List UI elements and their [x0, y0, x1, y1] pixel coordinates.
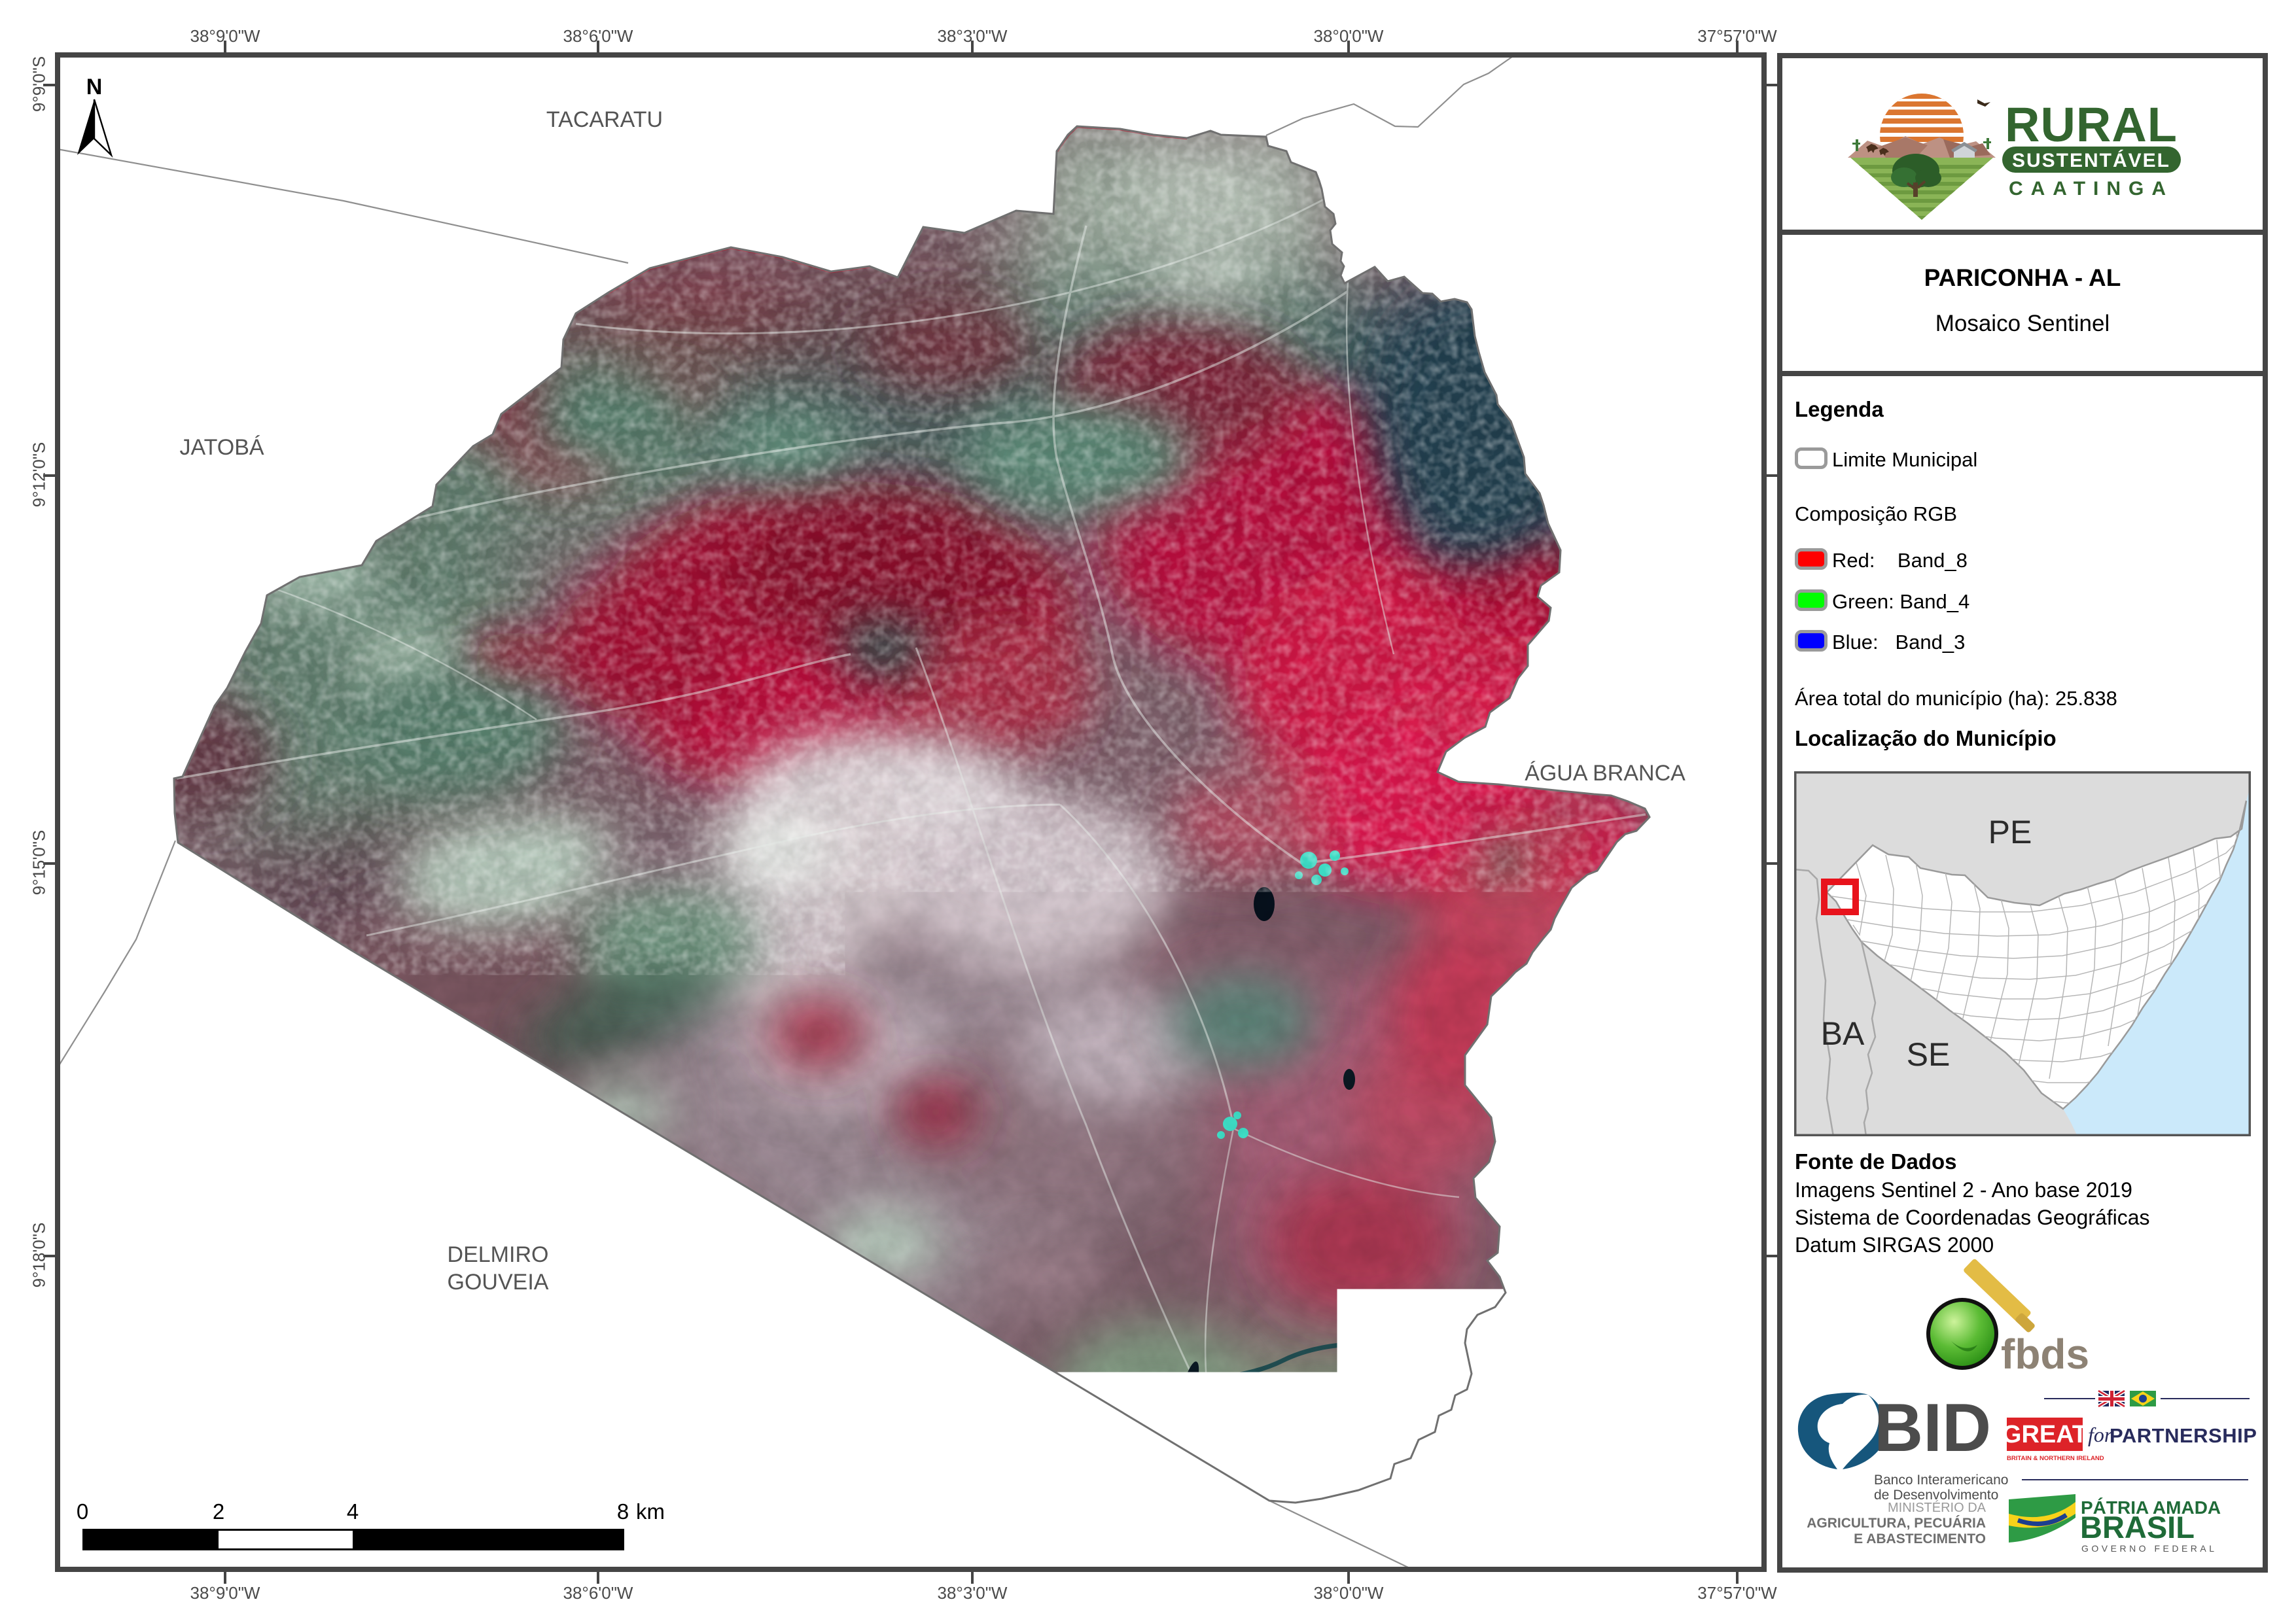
svg-text:CAATINGA: CAATINGA	[2009, 178, 2174, 200]
svg-text:GOVERNO FEDERAL: GOVERNO FEDERAL	[2081, 1543, 2217, 1554]
svg-text:PARTNERSHIP: PARTNERSHIP	[2110, 1424, 2257, 1447]
svg-text:RURAL: RURAL	[2005, 97, 2178, 152]
svg-text:BA: BA	[1821, 1015, 1865, 1052]
svg-text:Banco Interamericano: Banco Interamericano	[1874, 1473, 2008, 1488]
svg-text:BID: BID	[1874, 1390, 1991, 1466]
svg-text:BRITAIN & NORTHERN IRELAND: BRITAIN & NORTHERN IRELAND	[2007, 1455, 2104, 1462]
svg-text:MINISTÉRIO DA: MINISTÉRIO DA	[1888, 1500, 1987, 1515]
svg-text:AGRICULTURA, PECUÁRIA: AGRICULTURA, PECUÁRIA	[1807, 1516, 1986, 1531]
svg-text:PE: PE	[1988, 814, 2032, 850]
svg-text:GREAT: GREAT	[2002, 1421, 2087, 1448]
svg-text:E ABASTECIMENTO: E ABASTECIMENTO	[1854, 1531, 1986, 1546]
svg-text:BRASIL: BRASIL	[2080, 1510, 2195, 1544]
svg-text:SUSTENTÁVEL: SUSTENTÁVEL	[2012, 149, 2170, 171]
svg-text:SE: SE	[1907, 1036, 1951, 1073]
svg-text:fbds: fbds	[2001, 1331, 2089, 1378]
